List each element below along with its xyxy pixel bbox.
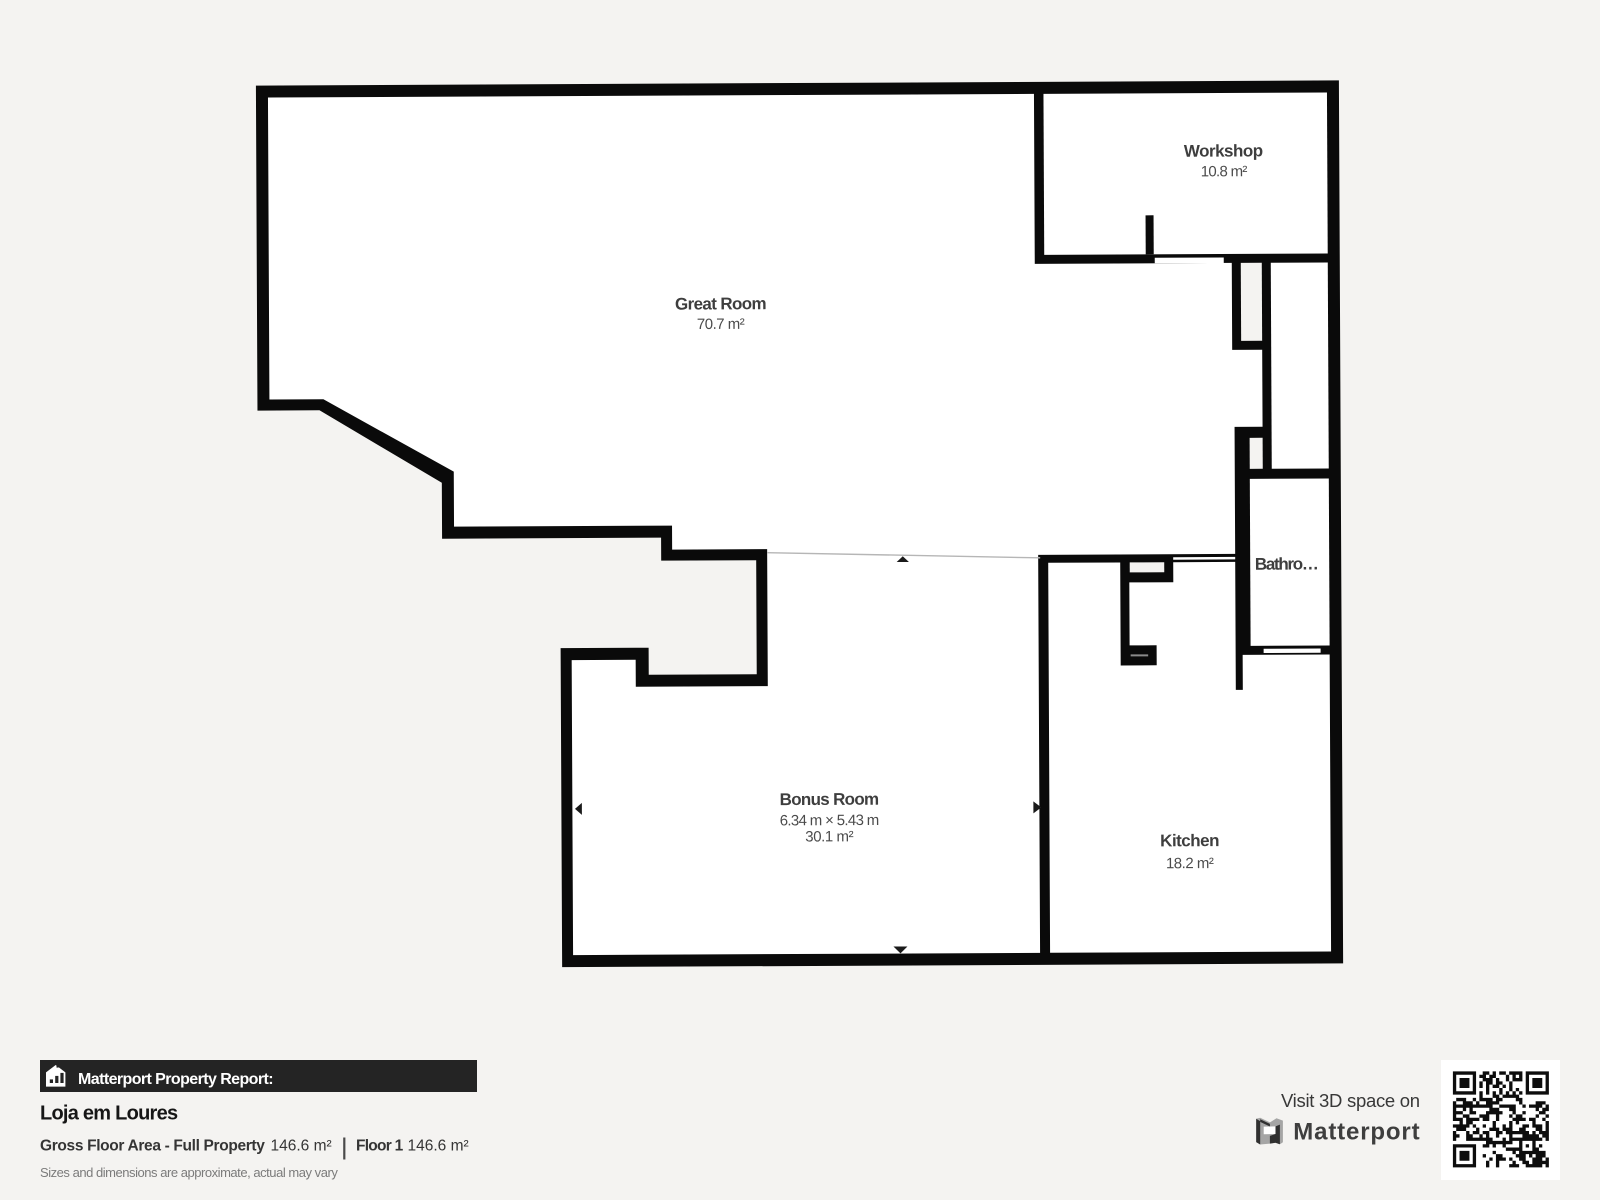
svg-text:Floor 1: Floor 1 xyxy=(356,1138,404,1155)
svg-text:Matterport: Matterport xyxy=(1293,1118,1420,1145)
svg-text:Loja em Loures: Loja em Loures xyxy=(40,1103,178,1125)
svg-text:Matterport Property Report:: Matterport Property Report: xyxy=(78,1071,273,1088)
svg-text:146.6 m²: 146.6 m² xyxy=(271,1138,332,1155)
svg-text:Sizes and dimensions are appro: Sizes and dimensions are approximate, ac… xyxy=(40,1165,338,1180)
svg-text:Gross Floor Area - Full Proper: Gross Floor Area - Full Property xyxy=(40,1138,265,1155)
svg-text:146.6 m²: 146.6 m² xyxy=(408,1138,469,1155)
svg-text:Visit 3D space on: Visit 3D space on xyxy=(1281,1090,1420,1111)
